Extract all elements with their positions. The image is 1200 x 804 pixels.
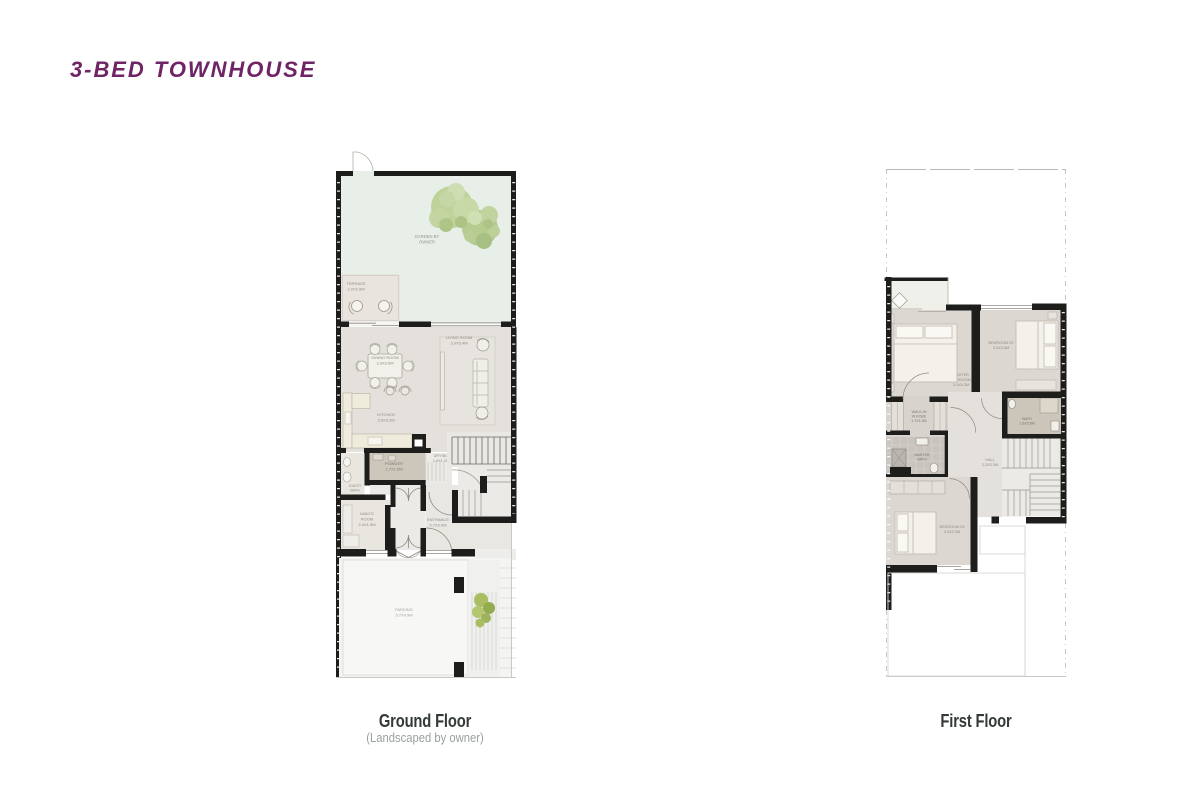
svg-text:LIVING ROOM: LIVING ROOM xyxy=(446,335,473,340)
svg-text:1.7X1.5M: 1.7X1.5M xyxy=(911,419,926,423)
svg-text:2.4X1.5M: 2.4X1.5M xyxy=(358,522,375,527)
svg-text:3.3X3.6M: 3.3X3.6M xyxy=(376,361,393,366)
svg-text:DINING ROOM: DINING ROOM xyxy=(371,355,399,360)
svg-text:1.6X2.6M: 1.6X2.6M xyxy=(1019,422,1034,426)
svg-text:BEDROOM 02: BEDROOM 02 xyxy=(989,341,1014,345)
svg-text:2.7X3.0M: 2.7X3.0M xyxy=(429,523,446,528)
svg-text:BATH: BATH xyxy=(1022,417,1032,421)
svg-text:2.2X3.3M: 2.2X3.3M xyxy=(982,463,998,467)
svg-text:BEDROOM 03: BEDROOM 03 xyxy=(940,525,965,529)
svg-text:DRYING: DRYING xyxy=(434,454,449,458)
svg-text:3.6X3.2M: 3.6X3.2M xyxy=(377,418,394,423)
svg-text:OWNER: OWNER xyxy=(419,240,435,245)
svg-text:ENTRANCE: ENTRANCE xyxy=(427,517,449,522)
svg-text:HALL: HALL xyxy=(985,458,995,462)
svg-text:ROOM: ROOM xyxy=(361,517,373,522)
svg-text:KITCHEN: KITCHEN xyxy=(377,412,395,417)
svg-text:BATH: BATH xyxy=(350,489,360,493)
svg-text:3.1X4.2M: 3.1X4.2M xyxy=(953,383,969,387)
svg-text:3.4X3.2M: 3.4X3.2M xyxy=(944,530,960,534)
svg-text:PARKING: PARKING xyxy=(395,607,413,612)
svg-text:GARDEN BY: GARDEN BY xyxy=(415,234,440,239)
svg-text:GUEST: GUEST xyxy=(349,484,362,488)
svg-text:1.7X1.5M: 1.7X1.5M xyxy=(385,467,402,472)
svg-text:3.9X5.4M: 3.9X5.4M xyxy=(450,341,467,346)
svg-text:TERRACE: TERRACE xyxy=(346,281,365,286)
svg-text:BATH: BATH xyxy=(917,458,927,462)
svg-text:5.7X4.9M: 5.7X4.9M xyxy=(395,613,412,618)
svg-text:W.ROBE: W.ROBE xyxy=(912,415,927,419)
svg-text:MASTER: MASTER xyxy=(915,453,930,457)
svg-text:POWDER: POWDER xyxy=(385,461,403,466)
svg-text:WALK-IN: WALK-IN xyxy=(912,410,927,414)
svg-text:3.2X3.6M: 3.2X3.6M xyxy=(993,346,1009,350)
svg-text:MAID'S: MAID'S xyxy=(360,511,374,516)
svg-text:1.6X1.2M: 1.6X1.2M xyxy=(433,459,449,463)
svg-text:2.2X2.0M: 2.2X2.0M xyxy=(347,287,364,292)
